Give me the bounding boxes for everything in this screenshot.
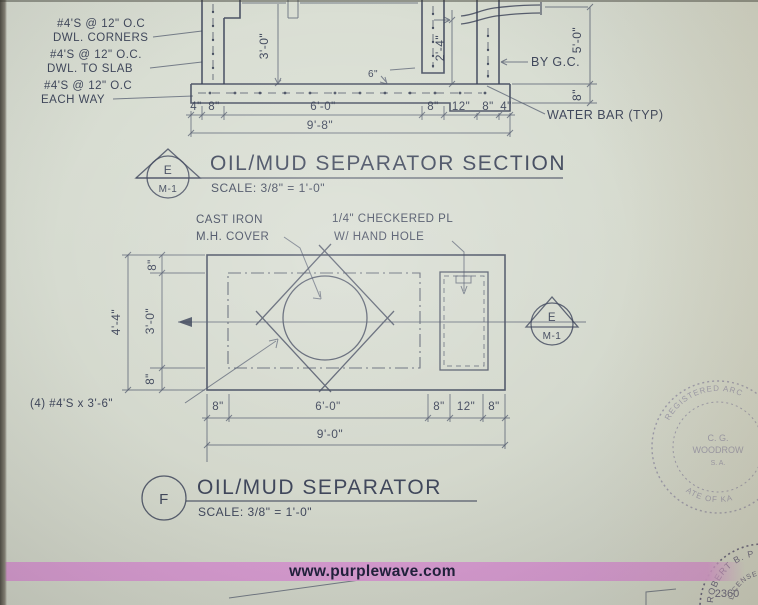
section-scale: SCALE: 3/8" = 1'-0" xyxy=(211,181,325,195)
rebar-label: (4) #4'S x 3'-6" xyxy=(30,398,113,410)
manhole-cover xyxy=(256,244,394,392)
architect-stamp: REGISTERED ARC ATE OF KA C. G. WOODROW S… xyxy=(652,381,758,513)
dim-invert-label: 5'-0" xyxy=(570,27,584,53)
license-stamp-number: 2360 xyxy=(715,588,739,600)
flow-arrow xyxy=(178,317,192,327)
slab-thickness-note: 6" xyxy=(368,68,415,84)
note-eachway-line2: EACH WAY xyxy=(41,94,105,106)
dim-label: 12" xyxy=(452,101,470,113)
blueprint-photo: #4'S @ 12" O.C DWL. CORNERS #4'S @ 12" O… xyxy=(0,0,758,605)
architect-stamp-top-arc: REGISTERED ARC xyxy=(663,384,745,422)
section-top-lines xyxy=(242,0,418,18)
dim-label: 4" xyxy=(190,101,201,113)
slab-note-label: 6" xyxy=(368,69,378,80)
svg-text:ATE OF KA: ATE OF KA xyxy=(684,486,733,504)
dim-gap-label: 2'-4" xyxy=(433,35,447,61)
plan-scale: SCALE: 3/8" = 1'-0" xyxy=(198,505,312,519)
architect-stamp-name1: C. G. xyxy=(707,433,728,443)
dim-label: 6'-0" xyxy=(310,101,335,113)
dim-depth-label: 3'-0" xyxy=(257,33,271,59)
section-drawing: #4'S @ 12" O.C DWL. CORNERS #4'S @ 12" O… xyxy=(41,0,664,198)
note-corners-line2: DWL. CORNERS xyxy=(53,32,148,44)
note-eachway-line1: #4'S @ 12" O.C xyxy=(44,80,132,92)
architect-stamp-name3: S. A. xyxy=(711,460,726,467)
dim-overall-label: 9'-0" xyxy=(317,427,343,441)
dim-label: 4" xyxy=(500,101,511,113)
dim-label: 8" xyxy=(145,373,157,384)
dim-label: 8" xyxy=(488,401,499,413)
plan-bubble: F xyxy=(159,491,169,508)
plate-label-line2: W/ HAND HOLE xyxy=(334,231,424,243)
cut-bubble: E M-1 xyxy=(526,297,578,345)
section-title: OIL/MUD SEPARATOR SECTION xyxy=(210,152,566,175)
dim-label: 8" xyxy=(208,101,219,113)
note-toslab-line2: DWL. TO SLAB xyxy=(47,63,133,75)
stray-lines xyxy=(229,579,676,605)
dim-label: 8" xyxy=(147,259,159,270)
section-right-wall xyxy=(477,0,499,84)
plan-callouts: CAST IRON M.H. COVER 1/4" CHECKERED PL W… xyxy=(196,213,467,299)
section-title-block: E M-1 OIL/MUD SEPARATOR SECTION SCALE: 3… xyxy=(136,149,566,198)
plan-title: OIL/MUD SEPARATOR xyxy=(197,476,442,499)
note-corners-line1: #4'S @ 12" O.C xyxy=(57,18,145,30)
dim-overall-label: 9'-8" xyxy=(307,118,333,132)
architect-stamp-bottom-arc: ATE OF KA xyxy=(684,486,733,504)
dim-depth: 3'-0" xyxy=(257,4,281,86)
dim-label: 8" xyxy=(433,401,444,413)
watermark-band: www.purplewave.com xyxy=(0,562,745,581)
dim-label: 8" xyxy=(212,401,223,413)
dim-label: 8" xyxy=(427,101,438,113)
plan-drawing: CAST IRON M.H. COVER 1/4" CHECKERED PL W… xyxy=(30,213,586,520)
dim-label: 12" xyxy=(457,401,475,413)
cut-bubble-top: E xyxy=(548,312,556,324)
section-rebar-notes: #4'S @ 12" O.C DWL. CORNERS #4'S @ 12" O… xyxy=(41,18,202,106)
by-gc-label: BY G.C. xyxy=(531,55,580,69)
photo-top-edge xyxy=(0,0,758,2)
dim-label: 8" xyxy=(482,101,493,113)
svg-text:REGISTERED ARC: REGISTERED ARC xyxy=(663,384,745,422)
section-bubble-bottom: M-1 xyxy=(159,184,178,195)
dim-overall-label: 4'-4" xyxy=(109,309,123,335)
plate-label-line1: 1/4" CHECKERED PL xyxy=(332,213,453,225)
cut-bubble-bottom: M-1 xyxy=(543,331,562,342)
drawing-sheet: #4'S @ 12" O.C DWL. CORNERS #4'S @ 12" O… xyxy=(0,0,758,605)
section-left-wall xyxy=(202,0,240,84)
plan-title-block: F OIL/MUD SEPARATOR SCALE: 3/8" = 1'-0" xyxy=(142,476,477,520)
dim-edge-label: 8" xyxy=(570,89,584,101)
water-bar-label: WATER BAR (TYP) xyxy=(547,108,664,122)
section-bubble-top: E xyxy=(164,163,173,177)
watermark-url: www.purplewave.com xyxy=(289,563,456,581)
by-gc-note: BY G.C. xyxy=(501,55,580,69)
section-bottom-dims: 4" 8" 6'-0" 8" 12" 8" 4" 9'-8" xyxy=(186,101,515,137)
cover-label-line1: CAST IRON xyxy=(196,214,263,226)
inlet-pipe xyxy=(461,2,541,24)
dim-label: 3'-0" xyxy=(143,308,157,334)
plan-bottom-dims: 8" 6'-0" 8" 12" 8" 9'-0" xyxy=(202,394,510,462)
note-toslab-line1: #4'S @ 12" O.C. xyxy=(50,49,142,61)
dim-label: 6'-0" xyxy=(315,401,340,413)
cover-label-line2: M.H. COVER xyxy=(196,231,269,243)
photo-left-edge xyxy=(0,0,7,605)
architect-stamp-name2: WOODROW xyxy=(693,445,744,455)
section-cut-line xyxy=(178,317,586,327)
